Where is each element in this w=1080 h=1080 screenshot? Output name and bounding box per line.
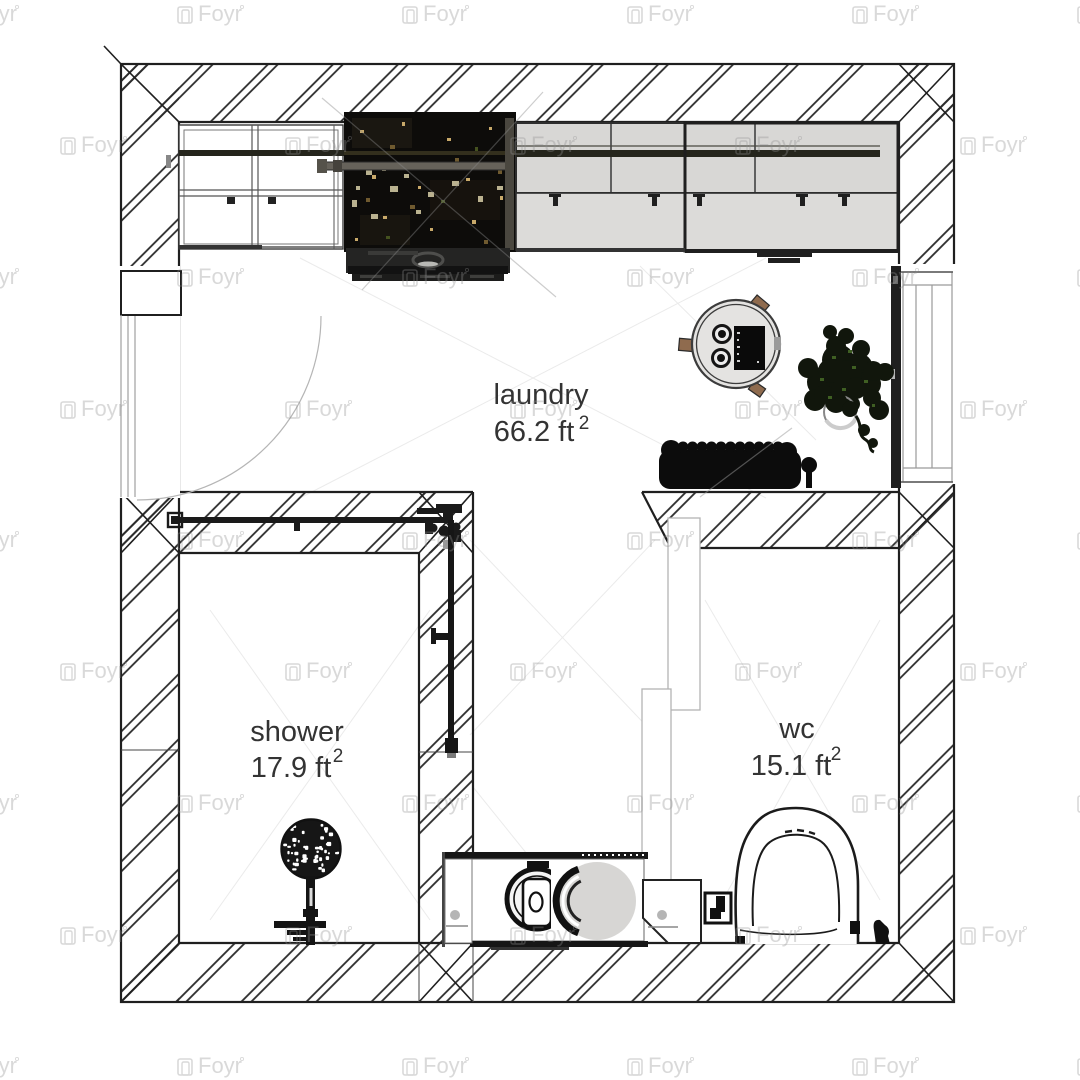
- svg-text:15.1 ft: 15.1 ft: [751, 750, 832, 782]
- svg-text:2: 2: [579, 413, 590, 434]
- svg-text:wc: wc: [778, 713, 814, 745]
- svg-text:17.9 ft: 17.9 ft: [251, 752, 332, 784]
- svg-text:2: 2: [831, 744, 842, 765]
- svg-text:shower: shower: [250, 716, 344, 748]
- svg-text:2: 2: [333, 746, 344, 767]
